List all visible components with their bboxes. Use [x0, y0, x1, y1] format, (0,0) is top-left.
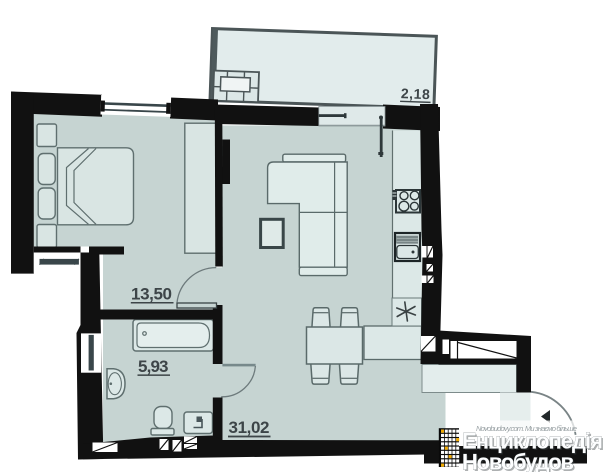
svg-text:2,18: 2,18 [401, 85, 431, 102]
svg-text:13,50: 13,50 [131, 285, 172, 304]
svg-text:5,93: 5,93 [138, 357, 169, 376]
svg-text:Новобудов: Новобудов [462, 449, 574, 472]
svg-text:31,02: 31,02 [229, 418, 270, 437]
